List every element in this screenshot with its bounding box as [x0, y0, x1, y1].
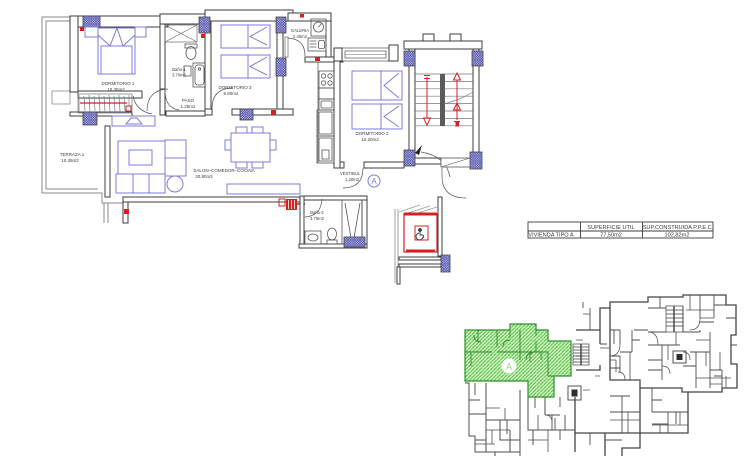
svg-text:10.20m2: 10.20m2 — [361, 137, 379, 142]
svg-text:Baño-2: Baño-2 — [310, 210, 324, 215]
svg-text:2.45m2: 2.45m2 — [293, 34, 308, 39]
svg-text:TERRAZA 1: TERRAZA 1 — [60, 152, 85, 157]
svg-text:VESTIBUL: VESTIBUL — [340, 171, 361, 176]
svg-text:A: A — [506, 362, 512, 372]
svg-text:PASO: PASO — [182, 98, 195, 103]
svg-text:9.80m2: 9.80m2 — [223, 91, 239, 96]
svg-text:SALON–COMEDOR–COCINA: SALON–COMEDOR–COCINA — [193, 168, 254, 173]
svg-text:Baño-1: Baño-1 — [172, 67, 186, 72]
svg-text:SUPERFICIE UTIL: SUPERFICIE UTIL — [587, 225, 634, 231]
svg-text:VIVIENDA TIPO A: VIVIENDA TIPO A — [528, 233, 574, 239]
svg-text:DORMITORIO 3: DORMITORIO 3 — [219, 85, 252, 90]
svg-text:102,82m2: 102,82m2 — [665, 233, 690, 239]
svg-text:DORMITORIO 1: DORMITORIO 1 — [102, 81, 135, 86]
svg-text:1.20m2: 1.20m2 — [345, 177, 360, 182]
svg-text:10.45m2: 10.45m2 — [61, 158, 79, 163]
svg-text:10.35m2: 10.35m2 — [107, 87, 125, 92]
svg-text:A: A — [371, 177, 377, 186]
svg-text:DORMITORIO 2: DORMITORIO 2 — [356, 131, 389, 136]
svg-text:77,50m2: 77,50m2 — [600, 233, 622, 239]
svg-text:GALERIA: GALERIA — [291, 28, 309, 33]
svg-text:SUP.CONSTRUIDA P.P.E.C.: SUP.CONSTRUIDA P.P.E.C. — [643, 225, 714, 231]
svg-text:3.70m2: 3.70m2 — [172, 73, 187, 78]
svg-text:30.80m2: 30.80m2 — [195, 174, 213, 179]
svg-text:1.25m2: 1.25m2 — [180, 104, 196, 109]
svg-text:3.75m2: 3.75m2 — [310, 216, 325, 221]
